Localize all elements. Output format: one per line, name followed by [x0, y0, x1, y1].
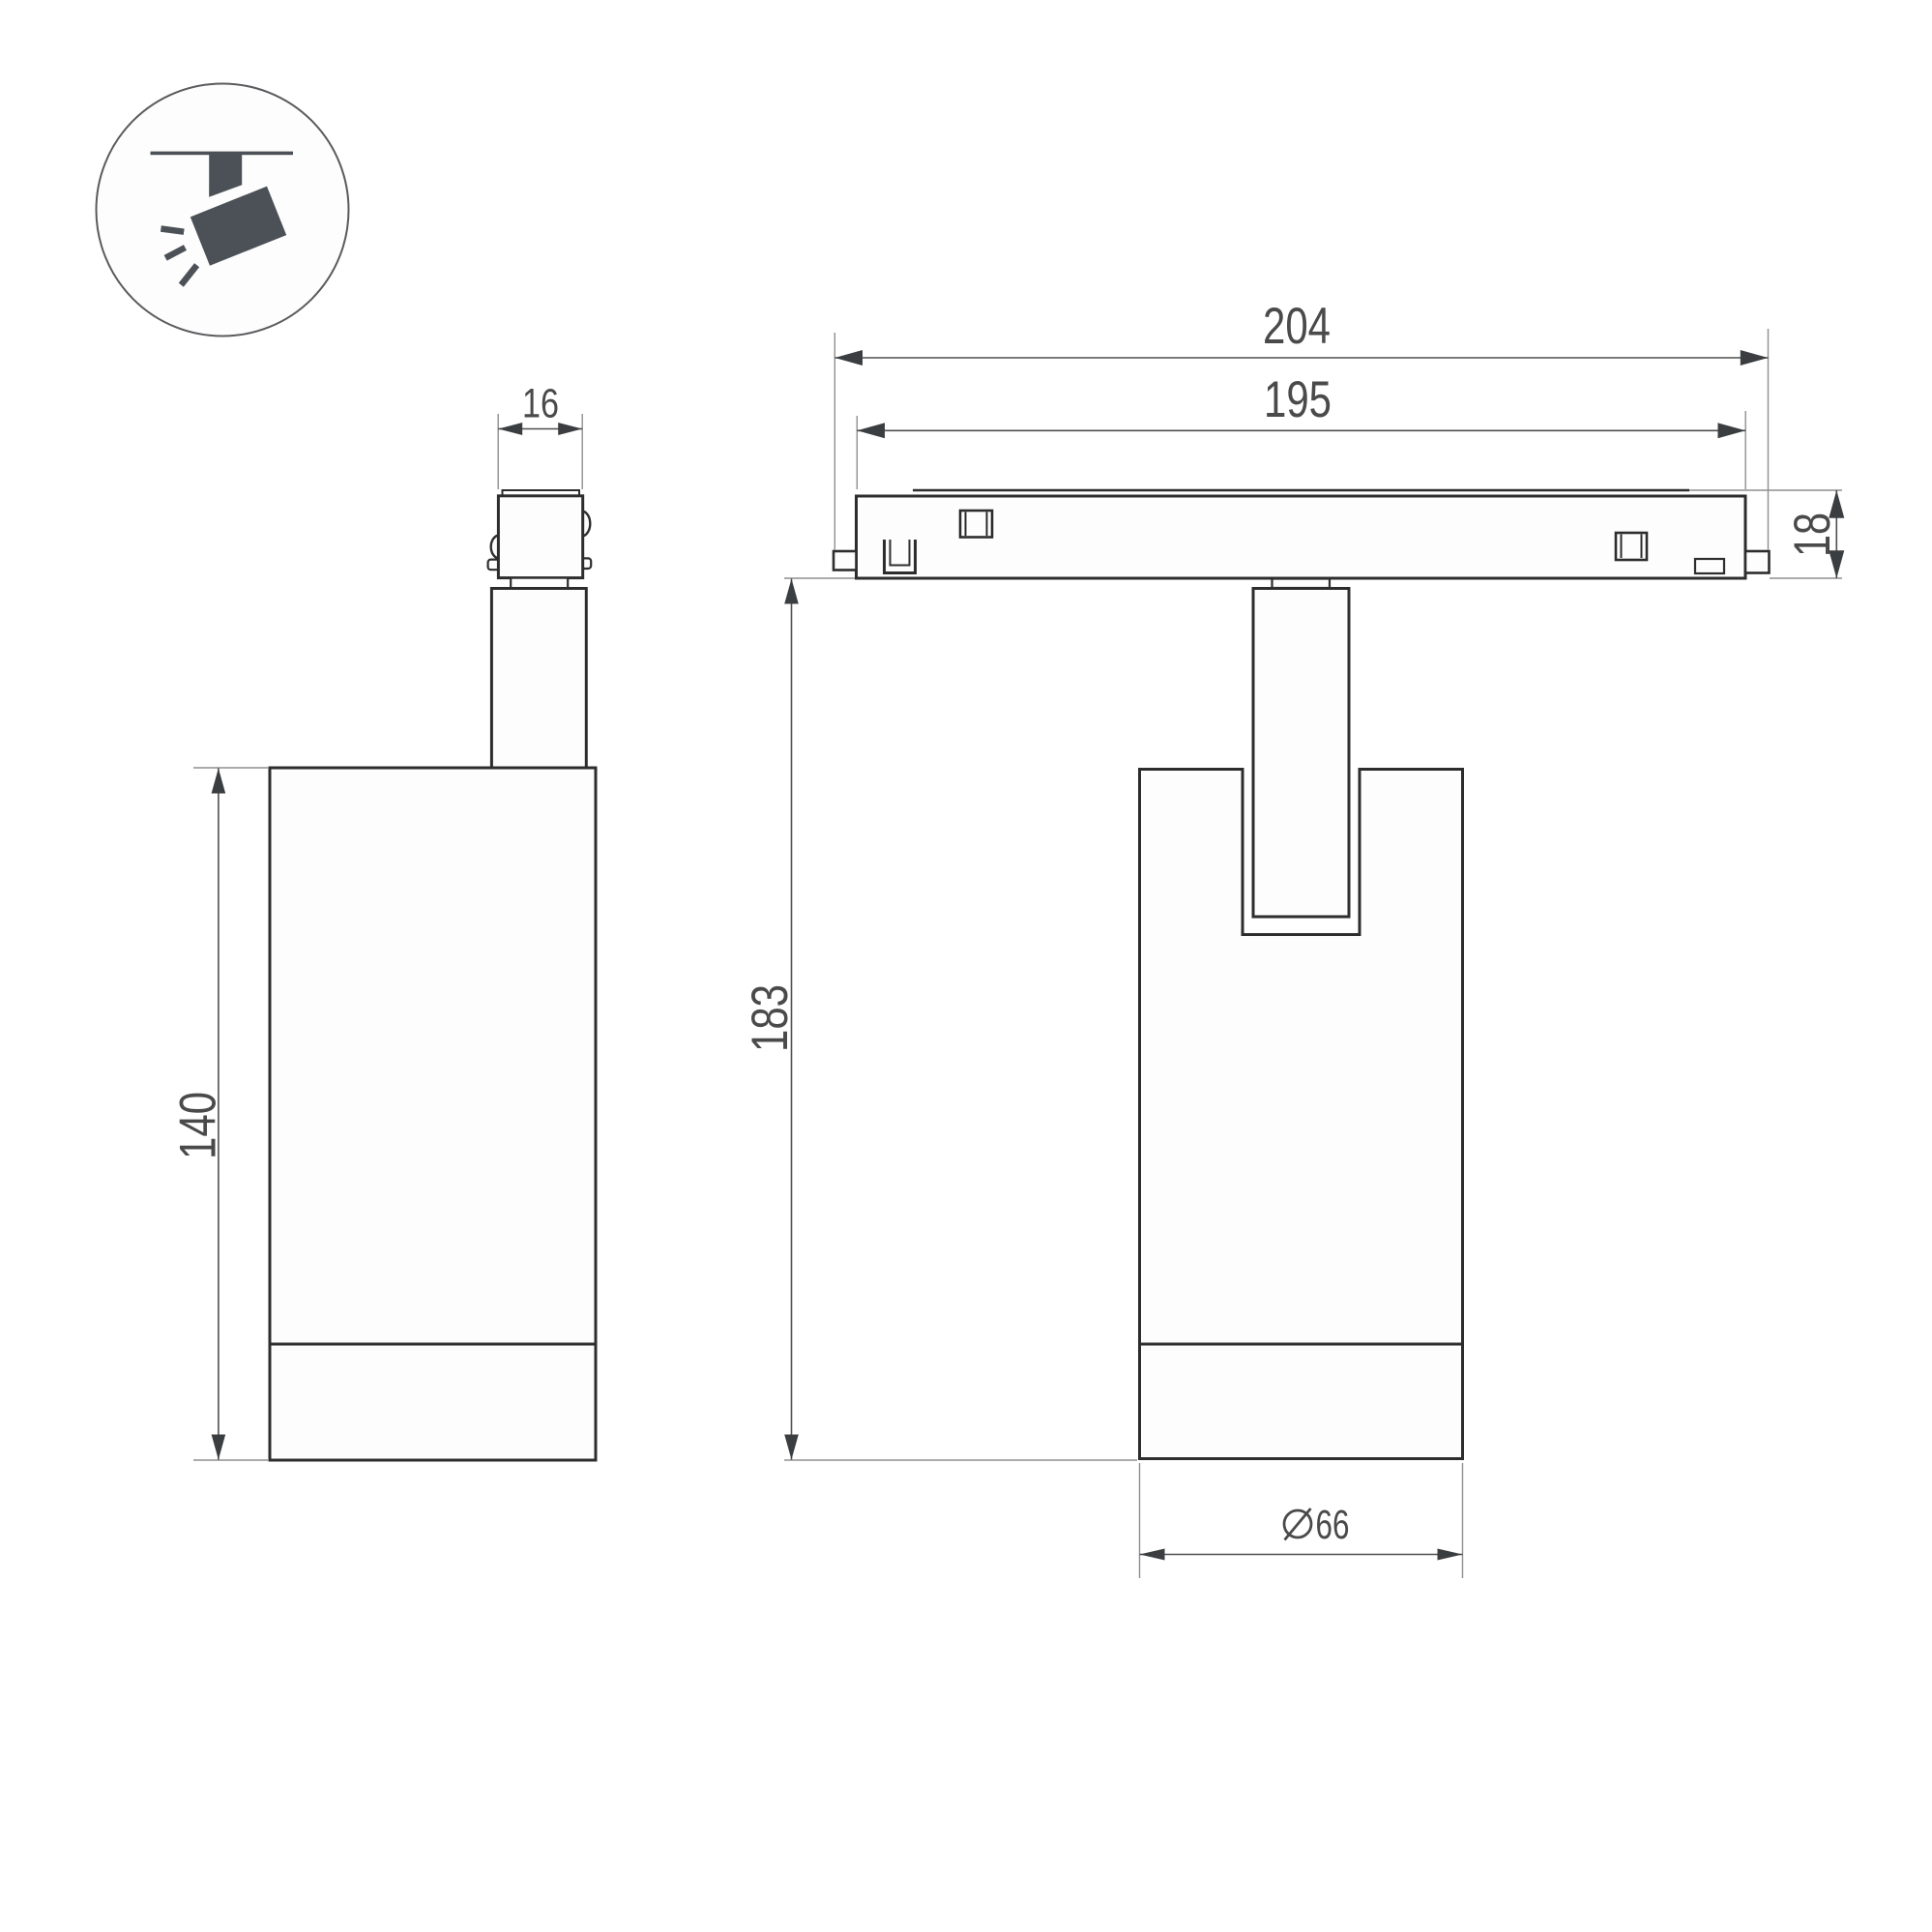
svg-text:66: 66: [1316, 1502, 1350, 1548]
svg-text:183: 183: [742, 984, 799, 1052]
svg-text:140: 140: [170, 1092, 227, 1159]
svg-text:195: 195: [1264, 371, 1332, 428]
svg-text:16: 16: [522, 381, 559, 427]
svg-text:204: 204: [1263, 298, 1331, 355]
svg-text:18: 18: [1784, 512, 1841, 557]
